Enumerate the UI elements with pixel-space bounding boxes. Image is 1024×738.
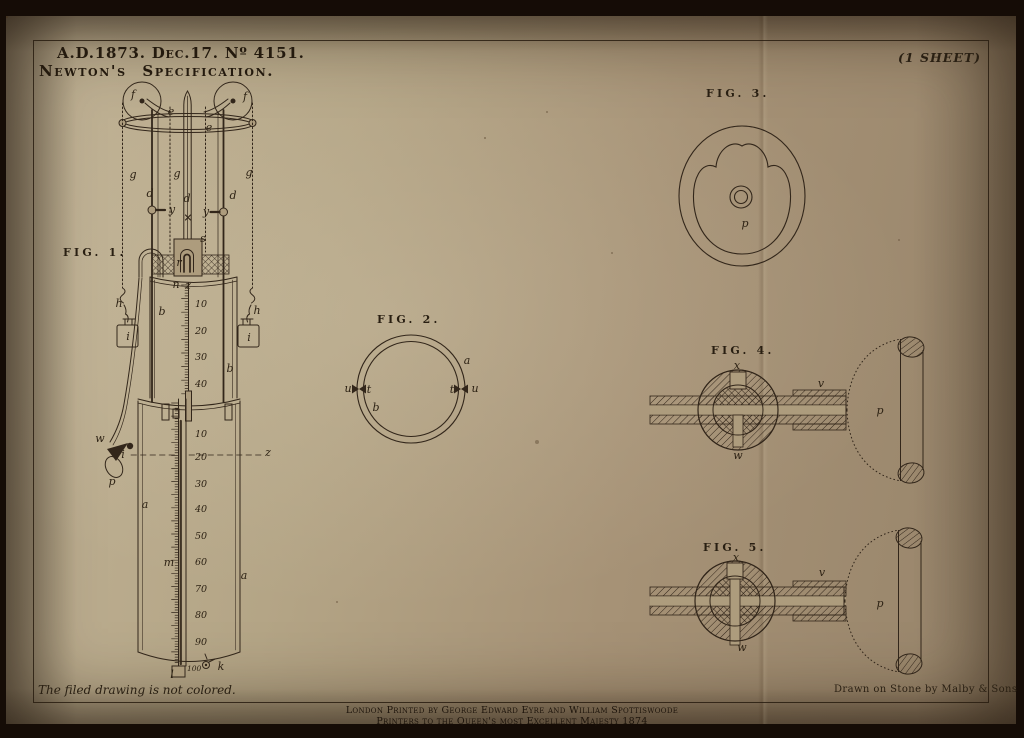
filed-drawing-note: The filed drawing is not colored. [38, 683, 236, 697]
figure-label: n [172, 278, 179, 291]
figure-1-apparatus: FIG. 1.ffeegggdddyysrnzbbhhiiwpizaamlk10… [63, 82, 271, 681]
figure-label: d [229, 189, 236, 202]
figure-label: k [218, 660, 225, 673]
printer-imprint: London Printed by George Edward Eyre and… [0, 705, 1024, 727]
figure-label: x [733, 551, 740, 564]
bell-flange-bottom [897, 461, 926, 484]
figure-label: w [95, 432, 105, 445]
figure-label: 20 [194, 326, 207, 337]
figure-label: 20 [194, 452, 207, 463]
figure-label: 50 [195, 531, 207, 542]
figure-label: 30 [195, 479, 207, 490]
lithographer-credit: Drawn on Stone by Malby & Sons [834, 684, 1017, 695]
figure-label: g [129, 168, 136, 181]
figure-label: h [253, 304, 260, 317]
bulb-inner-contour [694, 144, 791, 254]
bulb-outline [679, 126, 805, 266]
figure-label: s [200, 232, 206, 245]
figure-label: 30 [195, 352, 207, 363]
figure-label: x [734, 359, 741, 372]
figure-label: l [170, 668, 174, 681]
bell-flange-top [895, 526, 924, 549]
figure-label: t [367, 383, 372, 396]
figure-2-ring: FIG. 2.abuttu [344, 313, 478, 443]
figure-label: u [344, 382, 351, 395]
lower-scale-ticks [172, 403, 179, 662]
figure-label: p [741, 217, 748, 230]
figure-label: e [206, 121, 213, 134]
figure-label: f [130, 88, 137, 101]
figure-label: i [126, 330, 130, 343]
figure-label: b [158, 305, 165, 318]
patent-drawing: FIG. 1.ffeegggdddyysrnzbbhhiiwpizaamlk10… [0, 0, 1024, 738]
figure-label: FIG. 4. [711, 344, 775, 357]
figure-label: e [168, 105, 175, 118]
packing-right [202, 255, 229, 274]
figure-label: p [876, 404, 883, 417]
figure-label: m [164, 556, 174, 569]
ring-inner [364, 342, 459, 437]
figure-label: f [242, 90, 249, 103]
figure-label: z [184, 279, 191, 292]
figure-label: 40 [194, 379, 207, 390]
figure-label: r [176, 256, 182, 269]
clamp-left [352, 385, 366, 394]
figure-label: b [372, 401, 379, 414]
figure-5-stopcock-turned: FIG. 5.xwvp [650, 526, 923, 675]
figure-label: 70 [195, 584, 207, 595]
figure-label: FIG. 2. [377, 313, 441, 326]
imprint-line-1: London Printed by George Edward Eyre and… [0, 705, 1024, 716]
figure-label: t [450, 383, 455, 396]
figure-label: a [142, 498, 149, 511]
figure-label: h [115, 297, 122, 310]
figure-label: v [818, 377, 825, 390]
figure-label: d [183, 192, 190, 205]
figure-label: 40 [194, 504, 207, 515]
figure-label: a [464, 354, 471, 367]
figure-label: 60 [195, 557, 207, 568]
figure-label: 80 [195, 610, 207, 621]
figure-label: FIG. 3. [706, 87, 770, 100]
figure-label: g [173, 167, 180, 180]
clamp-right [454, 385, 468, 394]
figure-3-bulb-plan: FIG. 3.p [679, 87, 805, 266]
figure-label: 90 [195, 637, 207, 648]
figure-label: 100 [187, 664, 202, 673]
figure-label: u [471, 382, 478, 395]
figure-label: v [819, 566, 826, 579]
upper-scale-ticks [182, 285, 189, 394]
figure-label: b [226, 362, 233, 375]
figure-label: g [245, 166, 252, 179]
figure-label: 10 [195, 299, 207, 310]
bell-flange-top [897, 335, 926, 358]
figure-label: p [876, 597, 883, 610]
valve-stem [730, 372, 746, 389]
figure-label: y [202, 205, 210, 218]
figure-4-stopcock-open: FIG. 4.xwvp [650, 335, 925, 484]
figure-label: i [121, 448, 125, 461]
bell-flange-bottom [895, 652, 924, 675]
bell-dome [845, 530, 899, 601]
figure-label: FIG. 1. [63, 246, 127, 259]
figure-3-labels: FIG. 3.p [706, 87, 770, 230]
figure-label: z [264, 446, 271, 459]
figure-label: w [737, 641, 747, 654]
figure-label: y [168, 203, 176, 216]
figure-label: p [108, 475, 115, 488]
figure-label: w [733, 449, 743, 462]
figure-label: 10 [195, 429, 207, 440]
figure-label: i [247, 331, 251, 344]
figure-label: a [241, 569, 248, 582]
bell-dome [847, 339, 901, 410]
imprint-line-2: Printers to the Queen's most Excellent M… [0, 716, 1024, 727]
figure-label: d [146, 187, 153, 200]
